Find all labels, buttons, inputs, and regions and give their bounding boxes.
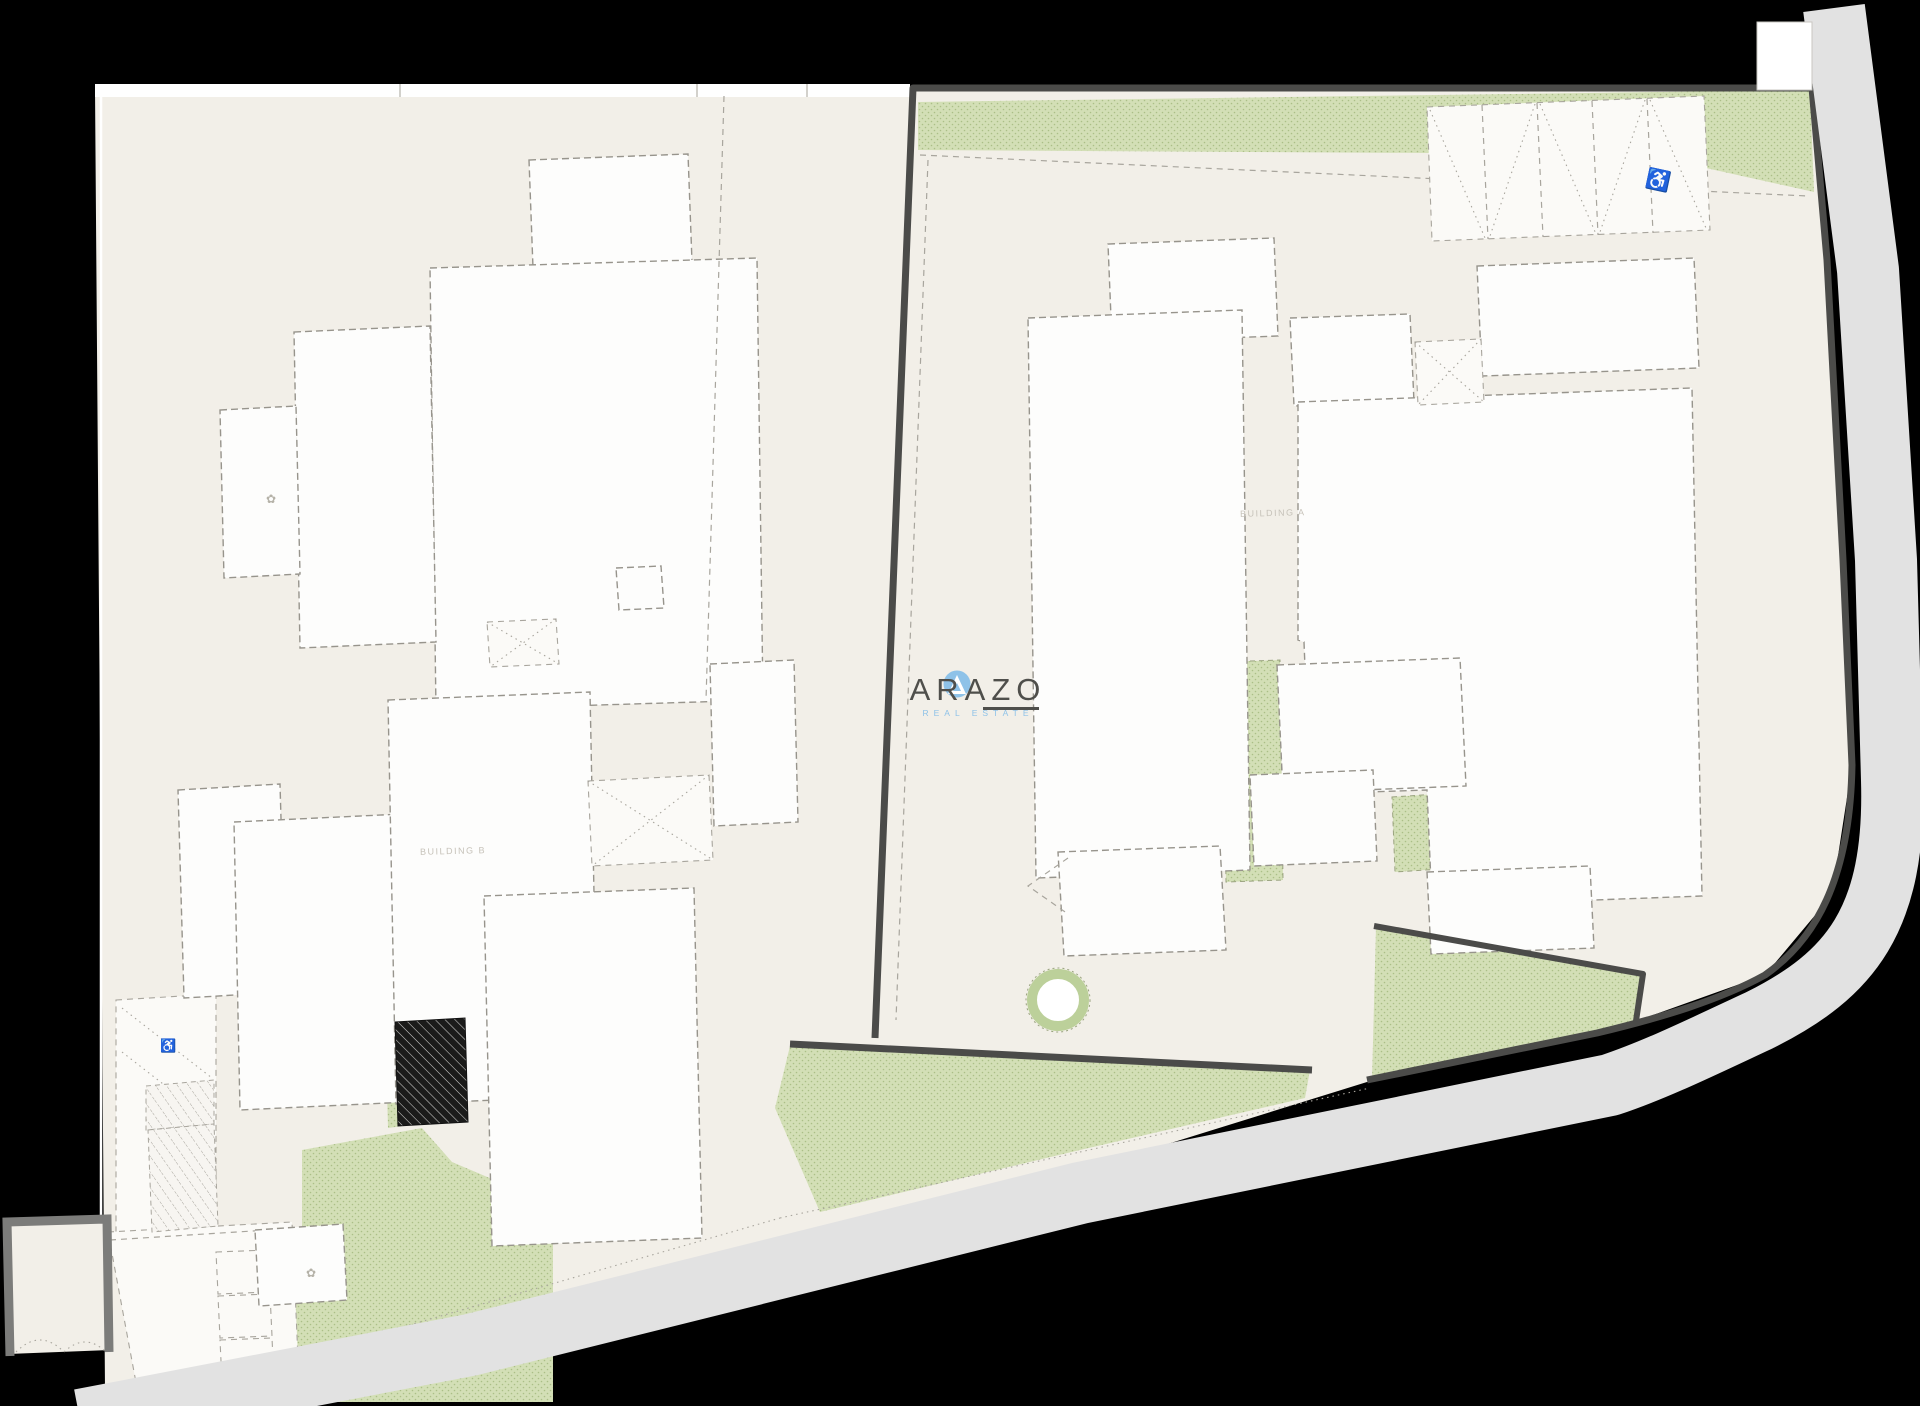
building-a-label: BUILDING A: [1240, 507, 1306, 519]
garage-structure: [6, 1218, 110, 1356]
logo-block: ARAZO REAL ESTATE: [893, 660, 1063, 718]
shrub-icon: ✿: [266, 492, 276, 506]
parking-lot: [1427, 96, 1710, 241]
stair-core-b: [395, 1018, 468, 1126]
shrub-icon: ✿: [306, 1266, 316, 1280]
logo-wordmark: ARAZO: [893, 674, 1063, 705]
pergola-a: [1415, 339, 1484, 405]
top-sidewalk: [95, 84, 910, 97]
logo-underline: [983, 707, 1039, 710]
building-b-label: BUILDING B: [420, 845, 486, 857]
building-cluster-a: [1028, 238, 1702, 956]
corner-structure: [1757, 22, 1812, 90]
accessible-ramp-icon: ♿: [160, 1038, 176, 1054]
accessible-parking-icon: ♿: [1644, 166, 1674, 196]
site-plan-canvas: ARAZO REAL ESTATE BUILDING B BUILDING A …: [0, 0, 1920, 1406]
